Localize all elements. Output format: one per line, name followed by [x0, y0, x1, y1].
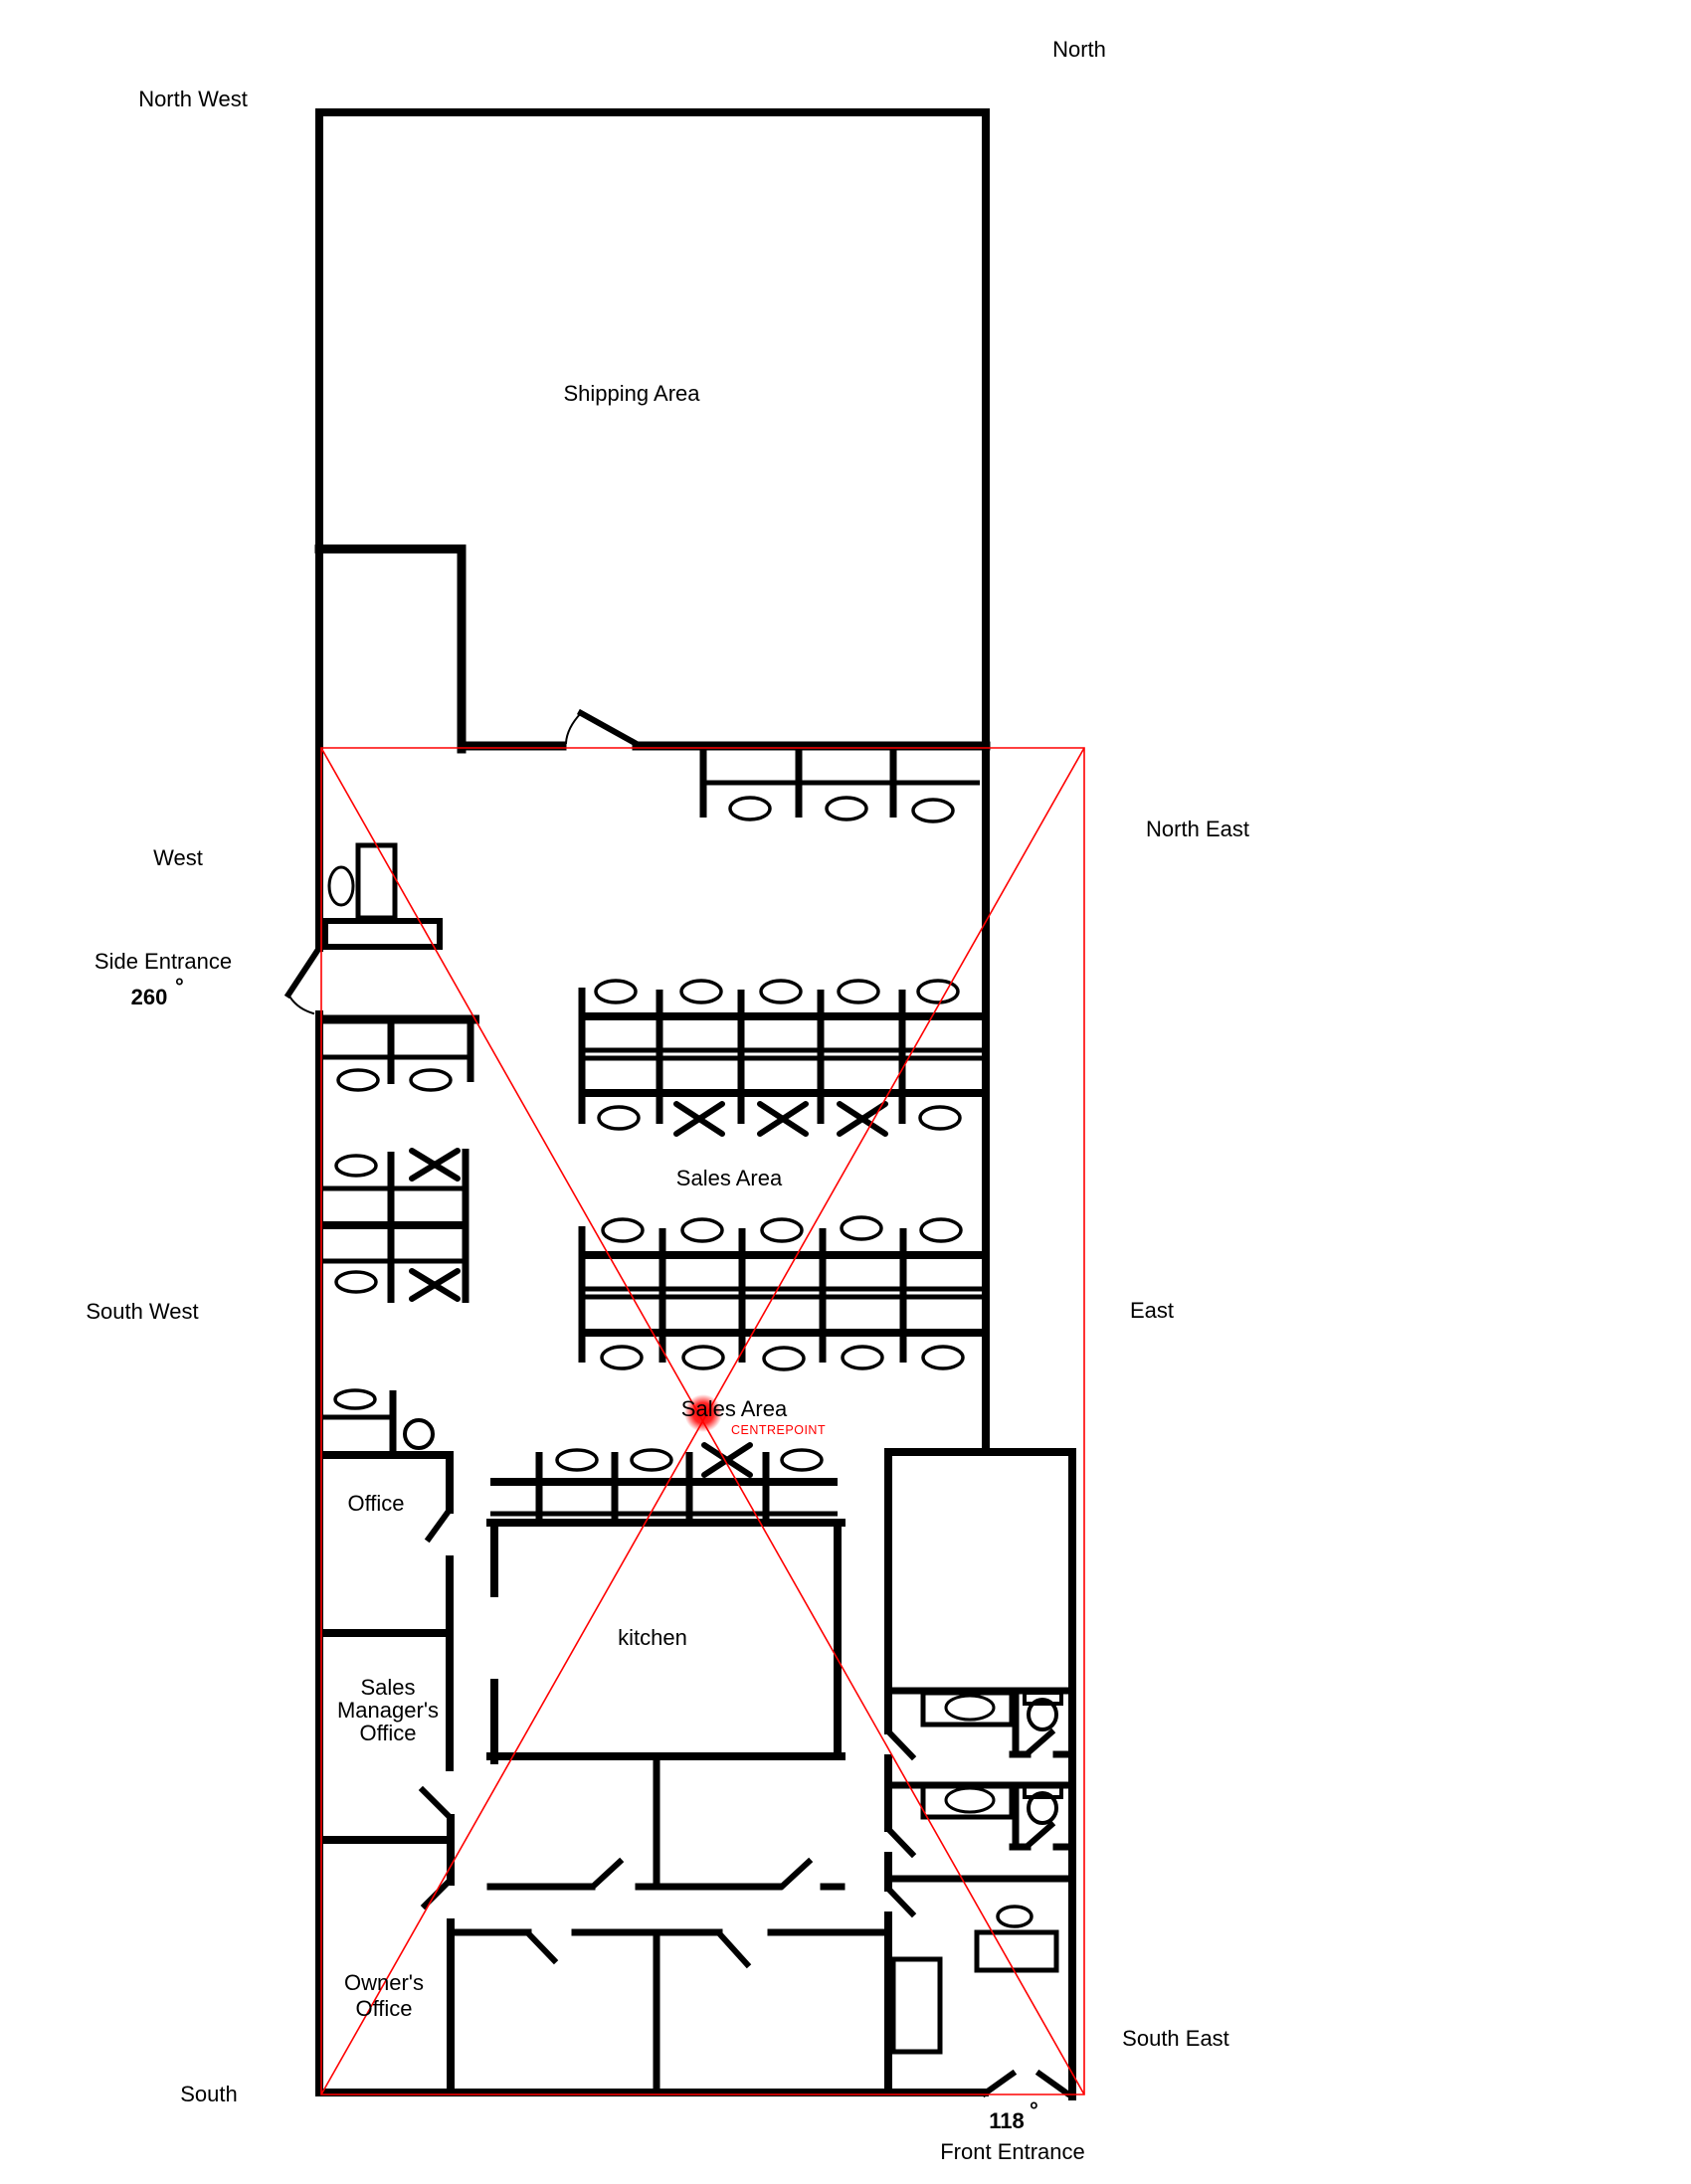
sales-manager-office-label-line2: Manager's: [337, 1698, 439, 1723]
compass-overlay: [321, 748, 1084, 2094]
chair-icon: [336, 1156, 376, 1176]
band-a-door-leaves: [594, 1862, 809, 1886]
chair-icon: [761, 981, 801, 1002]
front-room-cabinet: [893, 1959, 940, 2052]
front-room-furniture: [893, 1907, 1056, 2052]
chair-icon: [913, 800, 953, 821]
compass-label-west: West: [153, 845, 203, 870]
band-b-door-leaves: [528, 1933, 747, 1964]
sales-manager-door-leaf: [423, 1790, 450, 1817]
chair-icon: [599, 1107, 639, 1129]
desk-row-north: [703, 749, 980, 821]
desk-block-west-b: [319, 1149, 466, 1303]
owner-office-label-line2: Office: [355, 1996, 412, 2021]
chair-icon: [827, 798, 866, 819]
side-entrance-label: Side Entrance: [94, 949, 232, 974]
lower-room-band-a-walls: [490, 1760, 842, 1887]
chair-icon: [842, 1217, 881, 1239]
side-entrance-fixtures: [325, 845, 440, 947]
front-entrance-angle: 118: [989, 2108, 1025, 2133]
chair-icon: [602, 1347, 642, 1368]
vacant-seat-x-icon: [676, 1104, 722, 1134]
compass-label-south: South: [180, 2082, 238, 2106]
vacant-seat-x-icon: [412, 1151, 458, 1179]
side-entrance-degree-symbol: °: [175, 974, 184, 999]
vacant-seat-x-icon: [840, 1104, 885, 1134]
reception-counter: [325, 921, 440, 947]
owner-office-label-line1: Owner's: [344, 1970, 424, 1995]
chair-icon: [557, 1450, 597, 1470]
side-entrance-door-leaf: [288, 948, 319, 995]
chair-icon: [603, 1219, 643, 1241]
front-entrance-label: Front Entrance: [940, 2139, 1085, 2164]
lower-room-band-b-walls: [451, 1932, 888, 2093]
front-entrance-degree-symbol: °: [1030, 2097, 1038, 2122]
sink-icon: [946, 1788, 994, 1812]
side-entrance-door-arc: [288, 995, 313, 1013]
chair-icon: [596, 981, 636, 1002]
office-walls: [319, 1455, 450, 1633]
chair-icon: [681, 981, 721, 1002]
chair-icon: [683, 1347, 723, 1368]
desk-block-centre-1: [582, 981, 982, 1134]
office-door-leaf: [429, 1510, 450, 1539]
washroom-2-fixtures: [923, 1785, 1061, 1823]
sink-icon: [946, 1696, 994, 1720]
front-entrance-doors: [985, 2074, 1067, 2093]
side-entrance-door: [288, 948, 319, 1013]
vacant-seat-x-icon: [704, 1445, 750, 1475]
fixture-ellipse: [329, 867, 353, 905]
sales-manager-office-label-line3: Office: [359, 1721, 416, 1745]
office-desk: [319, 1390, 433, 1452]
chair-icon: [336, 1272, 376, 1292]
chair-icon: [411, 1070, 451, 1090]
fixture-cabinet: [358, 845, 395, 918]
sales-area-upper-label: Sales Area: [676, 1166, 783, 1190]
chair-icon: [923, 1347, 963, 1368]
chair-icon: [998, 1907, 1032, 1926]
shipping-door-leaf: [581, 713, 637, 744]
chair-icon: [338, 1070, 378, 1090]
compass-label-north-east: North East: [1146, 817, 1249, 841]
washroom-1-fixtures: [923, 1693, 1061, 1729]
desk-block-west-a: [319, 1019, 479, 1090]
chair-icon: [682, 1219, 722, 1241]
sales-area-lower-label: Sales Area: [681, 1396, 788, 1421]
desk-block-centre-2: [582, 1217, 982, 1369]
centrepoint-label: CENTREPOINT: [731, 1423, 826, 1437]
front-room-desk: [977, 1932, 1056, 1970]
shipping-door-arc: [566, 713, 581, 743]
vacant-seat-x-icon: [412, 1271, 458, 1299]
vacant-seat-x-icon: [760, 1104, 806, 1134]
floor-plan: North North West North East West East So…: [0, 0, 1691, 2184]
shipping-area-label: Shipping Area: [564, 381, 701, 406]
compass-label-south-east: South East: [1122, 2026, 1229, 2051]
chair-icon: [843, 1347, 882, 1368]
chair-icon: [839, 981, 878, 1002]
owner-office-door-leaf: [425, 1881, 450, 1906]
sales-manager-office-label-line1: Sales: [360, 1675, 415, 1700]
desk-row-above-kitchen: [490, 1445, 838, 1520]
chair-icon: [920, 1107, 960, 1129]
front-entrance-door-leaves: [985, 2074, 1067, 2093]
chair-icon: [762, 1219, 802, 1241]
storage-notch-walls: [319, 549, 462, 749]
kitchen-label: kitchen: [618, 1625, 687, 1650]
chair-icon: [335, 1390, 375, 1408]
office-chair-icon: [405, 1420, 433, 1448]
shipping-door: [566, 713, 637, 744]
chair-icon: [782, 1450, 822, 1470]
chair-icon: [921, 1219, 961, 1241]
side-entrance-angle: 260: [131, 985, 168, 1009]
washroom-door-leaves: [1028, 1732, 1051, 1846]
chair-icon: [730, 798, 770, 819]
chair-icon: [764, 1348, 804, 1369]
compass-label-east: East: [1130, 1298, 1174, 1323]
compass-label-south-west: South West: [86, 1299, 198, 1324]
compass-label-north: North: [1052, 37, 1106, 62]
office-label: Office: [347, 1491, 404, 1516]
chair-icon: [918, 981, 958, 1002]
chair-icon: [632, 1450, 671, 1470]
compass-label-north-west: North West: [138, 87, 248, 111]
